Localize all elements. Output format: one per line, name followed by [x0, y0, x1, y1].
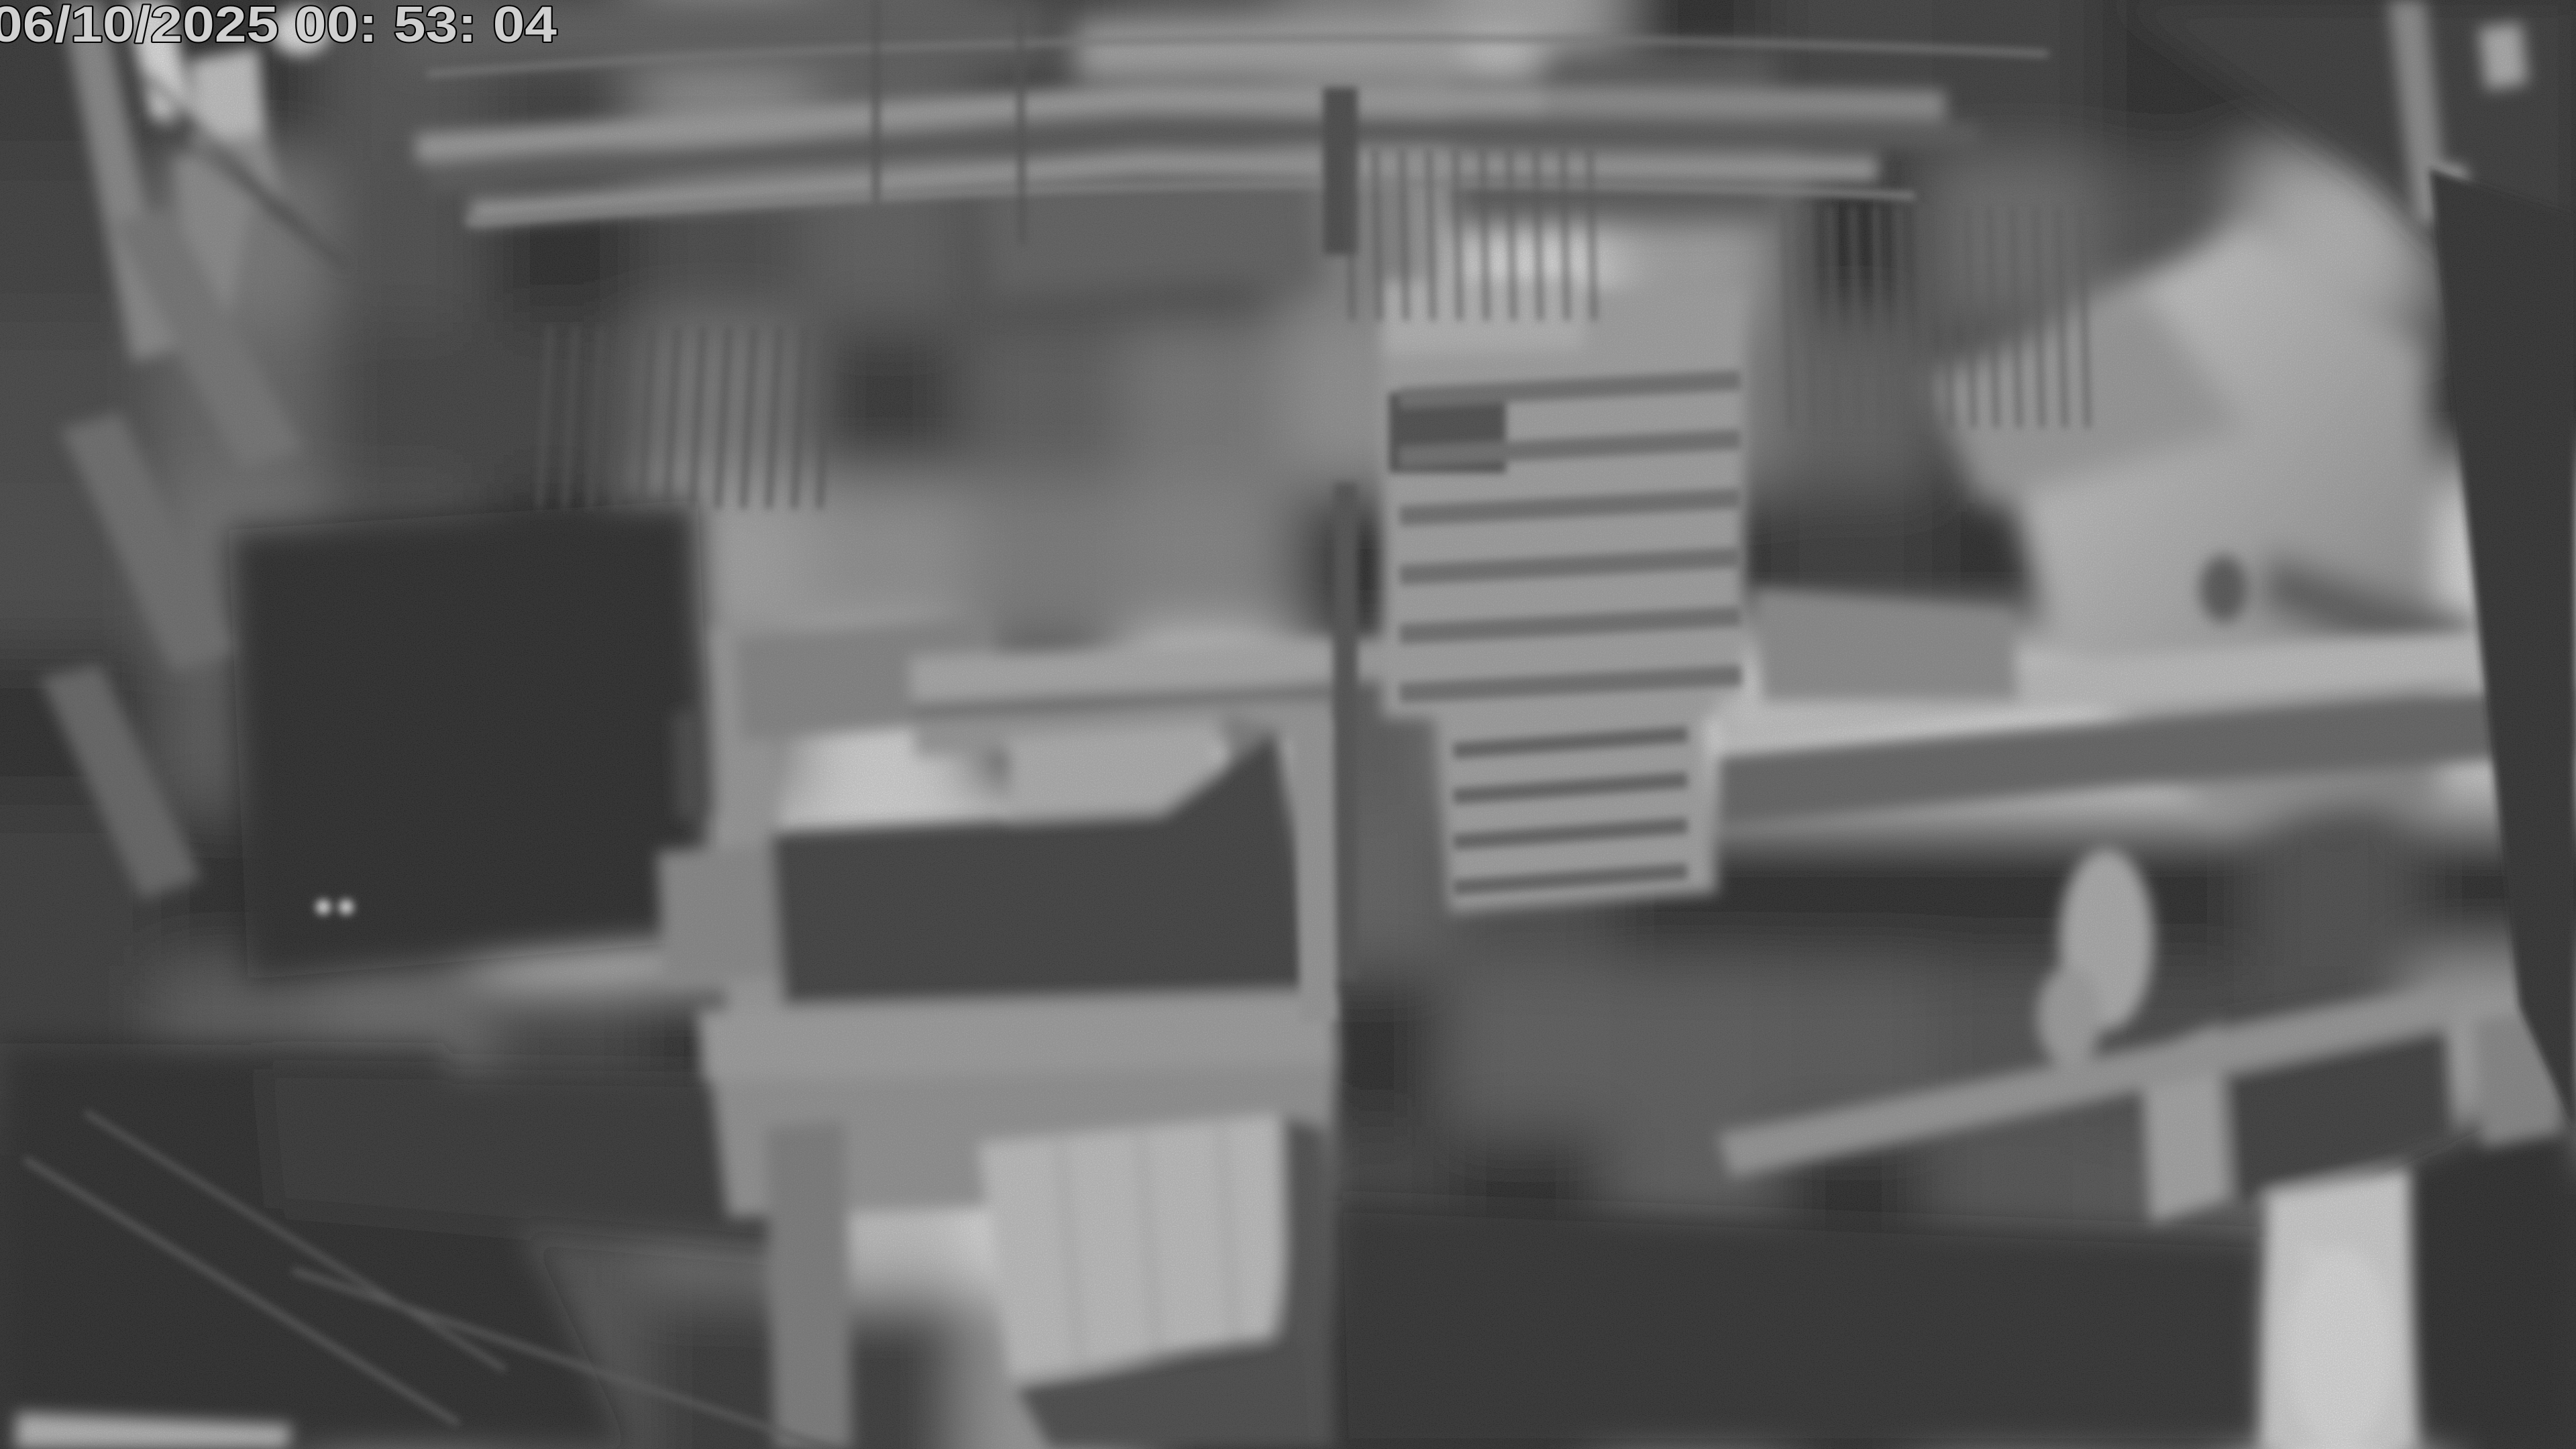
svg-text:06/10/2025 00: 53: 04: 06/10/2025 00: 53: 04: [0, 0, 557, 52]
